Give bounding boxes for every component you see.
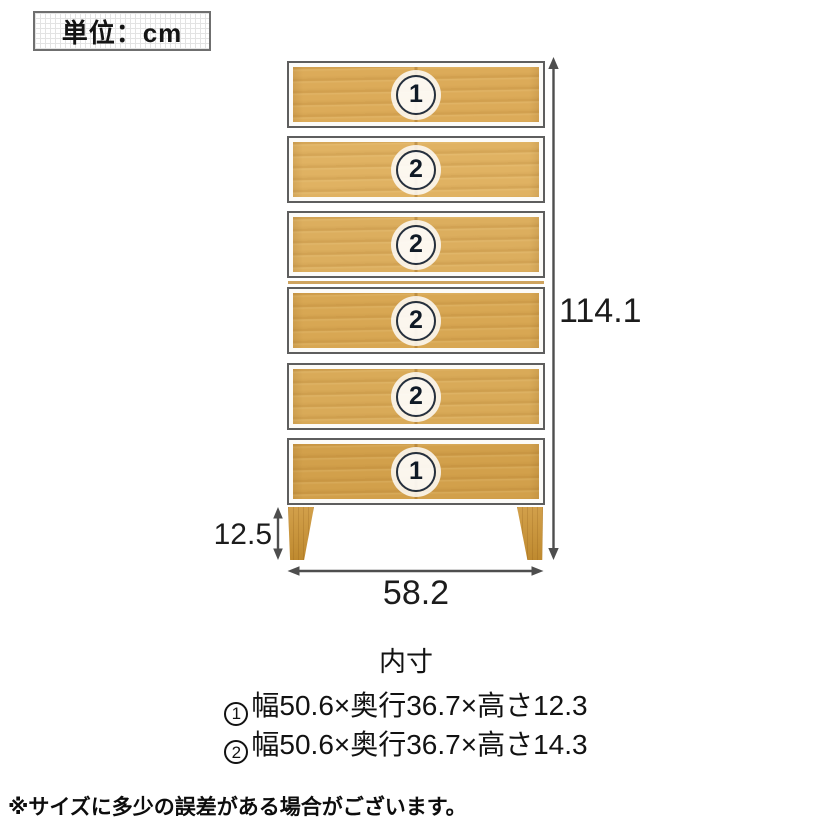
left-leg [288,507,314,560]
inner-dimensions-title: 内寸 [96,640,716,679]
unit-box: 単位：cm [33,11,211,51]
row-1-text: 幅50.6×奥行36.7×高さ12.3 [251,690,587,721]
drawer-badge: 2 [396,150,436,190]
drawer-3-front: 2 [293,217,539,272]
drawer-3: 2 [287,211,545,278]
drawer-6-front: 1 [293,444,539,499]
drawer-2: 2 [287,136,545,203]
row-1-badge: 1 [224,702,248,726]
drawer-badge: 1 [396,75,436,115]
drawer-badge-number: 1 [409,80,423,109]
width-label: 58.2 [288,574,544,613]
row-2-text: 幅50.6×奥行36.7×高さ14.3 [251,729,587,760]
leg-height-label: 12.5 [206,518,272,552]
drawer-badge-number: 2 [409,382,423,411]
drawer-4-front: 2 [293,293,539,348]
drawer-2-front: 2 [293,142,539,197]
inner-dimension-row-2: 2幅50.6×奥行36.7×高さ14.3 [96,726,716,765]
drawer-5-front: 2 [293,369,539,424]
drawer-4: 2 [287,287,545,354]
drawer-1: 1 [287,61,545,128]
drawer-badge: 2 [396,225,436,265]
unit-label: 単位：cm [62,13,183,50]
leg-height-arrow [273,507,283,560]
row-2-badge: 2 [224,740,248,764]
drawer-badge-number: 2 [409,155,423,184]
stack-joint-line [288,281,544,284]
drawer-badge-number: 2 [409,230,423,259]
drawer-badge: 1 [396,452,436,492]
drawer-badge-number: 1 [409,457,423,486]
inner-dimensions-block: 内寸 1幅50.6×奥行36.7×高さ12.3 2幅50.6×奥行36.7×高さ… [96,640,716,764]
drawer-badge: 2 [396,301,436,341]
product-dimension-diagram: 単位：cm 1 2 2 2 [0,0,830,830]
total-height-label: 114.1 [559,292,642,331]
drawer-badge: 2 [396,377,436,417]
inner-dimension-row-1: 1幅50.6×奥行36.7×高さ12.3 [96,687,716,726]
drawer-1-front: 1 [293,67,539,122]
drawer-badge-number: 2 [409,306,423,335]
total-height-arrow [548,57,558,560]
drawer-6: 1 [287,438,545,505]
right-leg [517,507,543,560]
size-tolerance-footnote: ※サイズに多少の誤差がある場合がございます。 [8,791,467,821]
drawer-5: 2 [287,363,545,430]
